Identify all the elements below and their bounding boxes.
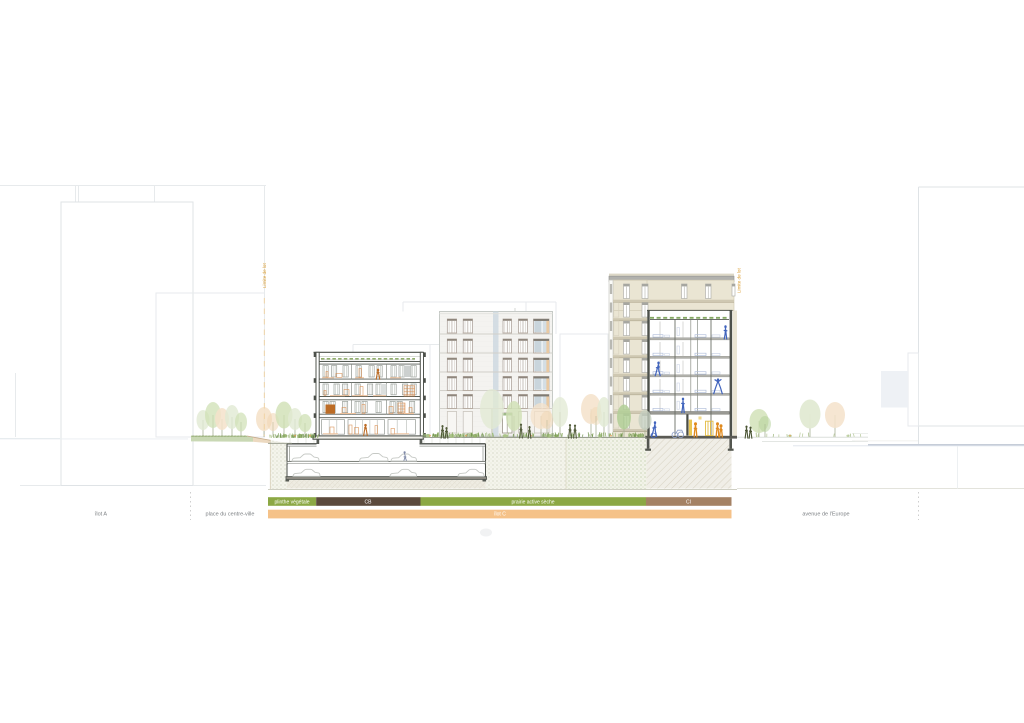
svg-text:CI: CI (686, 499, 691, 505)
svg-text:Limite de lot: Limite de lot (737, 268, 742, 293)
svg-text:place du centre-ville: place du centre-ville (206, 512, 255, 518)
svg-text:CB: CB (365, 499, 373, 505)
svg-text:avenue de l'Europe: avenue de l'Europe (802, 512, 849, 518)
svg-text:prairie active sèche: prairie active sèche (511, 499, 554, 505)
svg-text:îlot C: îlot C (493, 512, 506, 518)
svg-text:îlot A: îlot A (94, 512, 108, 518)
svg-text:Limite de lot: Limite de lot (262, 263, 267, 288)
svg-text:plinthe végétale: plinthe végétale (274, 499, 309, 505)
